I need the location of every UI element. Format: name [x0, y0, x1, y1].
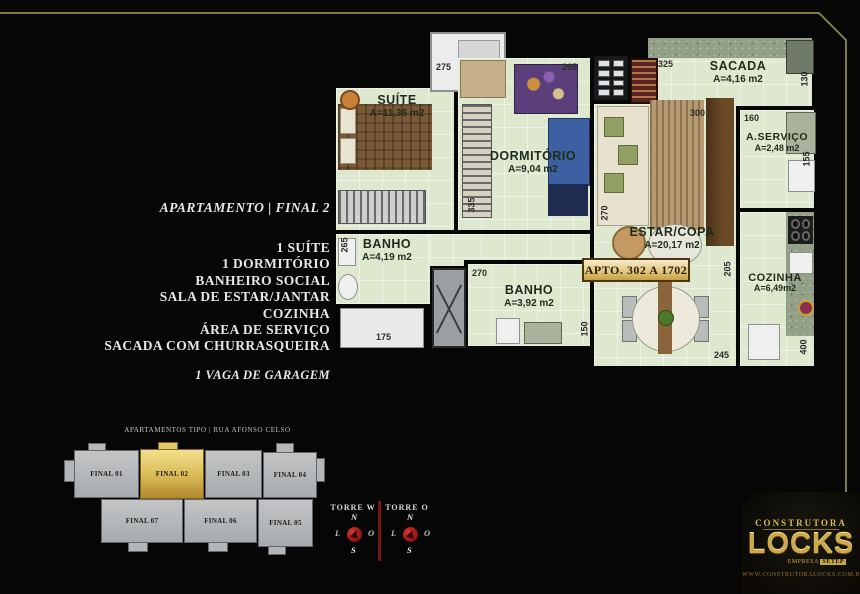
compass-needle	[403, 527, 418, 542]
dim-335: 335	[467, 197, 477, 212]
feature-item: BANHEIRO SOCIAL	[30, 273, 330, 289]
compass-divider	[378, 501, 381, 561]
kitchen-sink	[789, 252, 813, 274]
label-dormitorio: DORMITÓRIO A=9,04 m2	[478, 150, 588, 175]
elevator-block	[594, 56, 628, 100]
sofa-cushion	[604, 117, 624, 137]
suite-wardrobe	[338, 190, 426, 224]
apartment-title: APARTAMENTO | FINAL 2	[30, 200, 330, 216]
unit-final-03: FINAL 03	[205, 450, 262, 498]
compass-s: S	[351, 545, 356, 555]
dim-245: 245	[714, 350, 729, 360]
unit-final-07: FINAL 07	[101, 499, 183, 543]
unit-final-02-highlighted: FINAL 02	[140, 449, 204, 499]
logo-setep-chip: SETEP	[820, 559, 846, 565]
dim-160: 160	[744, 113, 759, 123]
dorm-desk	[460, 60, 506, 98]
torre-w-label: TORRE W	[328, 503, 378, 512]
torre-o-label: TORRE O	[382, 503, 432, 512]
unit-final-05: FINAL 05	[258, 499, 313, 547]
dorm-bed-foot	[548, 184, 588, 216]
garage-note: 1 VAGA DE GARAGEM	[30, 368, 330, 383]
logo-brand-top: CONSTRUTORA	[742, 518, 860, 528]
logo-brand-name: LOCKS	[742, 530, 860, 559]
label-estar: ESTAR/COPA A=20,17 m2	[616, 226, 728, 251]
compass-l: L	[391, 528, 396, 538]
compass-n: N	[407, 512, 413, 522]
feature-item: SALA DE ESTAR/JANTAR	[30, 289, 330, 305]
banho2-sink	[496, 318, 520, 344]
dim-275: 275	[436, 62, 451, 72]
label-suite: SUÍTE A=11,36 m2	[352, 94, 442, 119]
unit-final-01: FINAL 01	[74, 450, 139, 498]
compass-rose-w: N O S L	[334, 512, 376, 558]
dim-150: 150	[580, 321, 590, 336]
corridor	[430, 234, 464, 266]
pillow	[340, 138, 356, 164]
poster-canvas: APARTAMENTO | FINAL 2 1 SUÍTE 1 DORMITÓR…	[0, 0, 860, 594]
feature-item: 1 SUÍTE	[30, 240, 330, 256]
dim-130: 130	[800, 71, 810, 86]
label-banho-1: BANHO A=4,19 m2	[352, 238, 422, 263]
dim-155: 155	[802, 151, 812, 166]
compass-needle	[347, 527, 362, 542]
dim-270-estar: 270	[600, 205, 610, 220]
flower-decor	[798, 300, 814, 316]
compass-o: O	[368, 528, 374, 538]
sofa-cushion	[618, 145, 638, 165]
builder-logo: CONSTRUTORA LOCKS EMPRESA SETEP WWW.CONS…	[742, 492, 860, 594]
stairs-block	[630, 58, 658, 104]
label-servico: A.SERVIÇO A=2,48 m2	[740, 132, 814, 153]
dim-175: 175	[376, 332, 391, 342]
unit-final-06: FINAL 06	[184, 499, 257, 543]
logo-url: WWW.CONSTRUTORALOCKS.COM.BR	[742, 572, 860, 578]
dim-325: 325	[658, 59, 673, 69]
building-diagram-header: APARTAMENTOS TIPO | RUA AFONSO CELSO	[100, 426, 315, 434]
dim-270-banho: 270	[472, 268, 487, 278]
fridge	[748, 324, 780, 360]
sofa-cushion	[604, 173, 624, 193]
unit-final-04: FINAL 04	[263, 452, 317, 498]
dim-265-top: 265	[562, 62, 577, 72]
feature-item: 1 DORMITÓRIO	[30, 256, 330, 272]
compass-n: N	[351, 512, 357, 522]
label-sacada: SACADA A=4,16 m2	[698, 60, 778, 85]
dim-300: 300	[690, 108, 705, 118]
hallway	[458, 234, 590, 260]
compass-rose-o: N O S L	[390, 512, 432, 558]
compass-l: L	[335, 528, 340, 538]
dim-205: 205	[723, 261, 733, 276]
feature-item: ÁREA DE SERVIÇO	[30, 322, 330, 338]
compass-s: S	[407, 545, 412, 555]
stove	[788, 216, 813, 244]
apto-number-badge: APTO. 302 A 1702	[582, 258, 690, 282]
duct-shaft	[432, 268, 466, 348]
dim-265-left: 265	[340, 237, 350, 252]
label-cozinha: COZINHA A=6,49m2	[740, 272, 810, 294]
banho1-toilet	[338, 274, 358, 300]
feature-item: SACADA COM CHURRASQUEIRA	[30, 338, 330, 354]
label-banho-2: BANHO A=3,92 m2	[486, 284, 572, 309]
churrasqueira	[786, 40, 814, 74]
entry-landing	[340, 308, 424, 348]
banho2-vanity	[524, 322, 562, 344]
estar-rug	[650, 100, 704, 230]
dim-400: 400	[799, 339, 809, 354]
feature-item: COZINHA	[30, 306, 330, 322]
table-plant	[658, 310, 674, 326]
tv-panel	[706, 98, 734, 246]
feature-list: 1 SUÍTE 1 DORMITÓRIO BANHEIRO SOCIAL SAL…	[30, 240, 330, 355]
compass-o: O	[424, 528, 430, 538]
